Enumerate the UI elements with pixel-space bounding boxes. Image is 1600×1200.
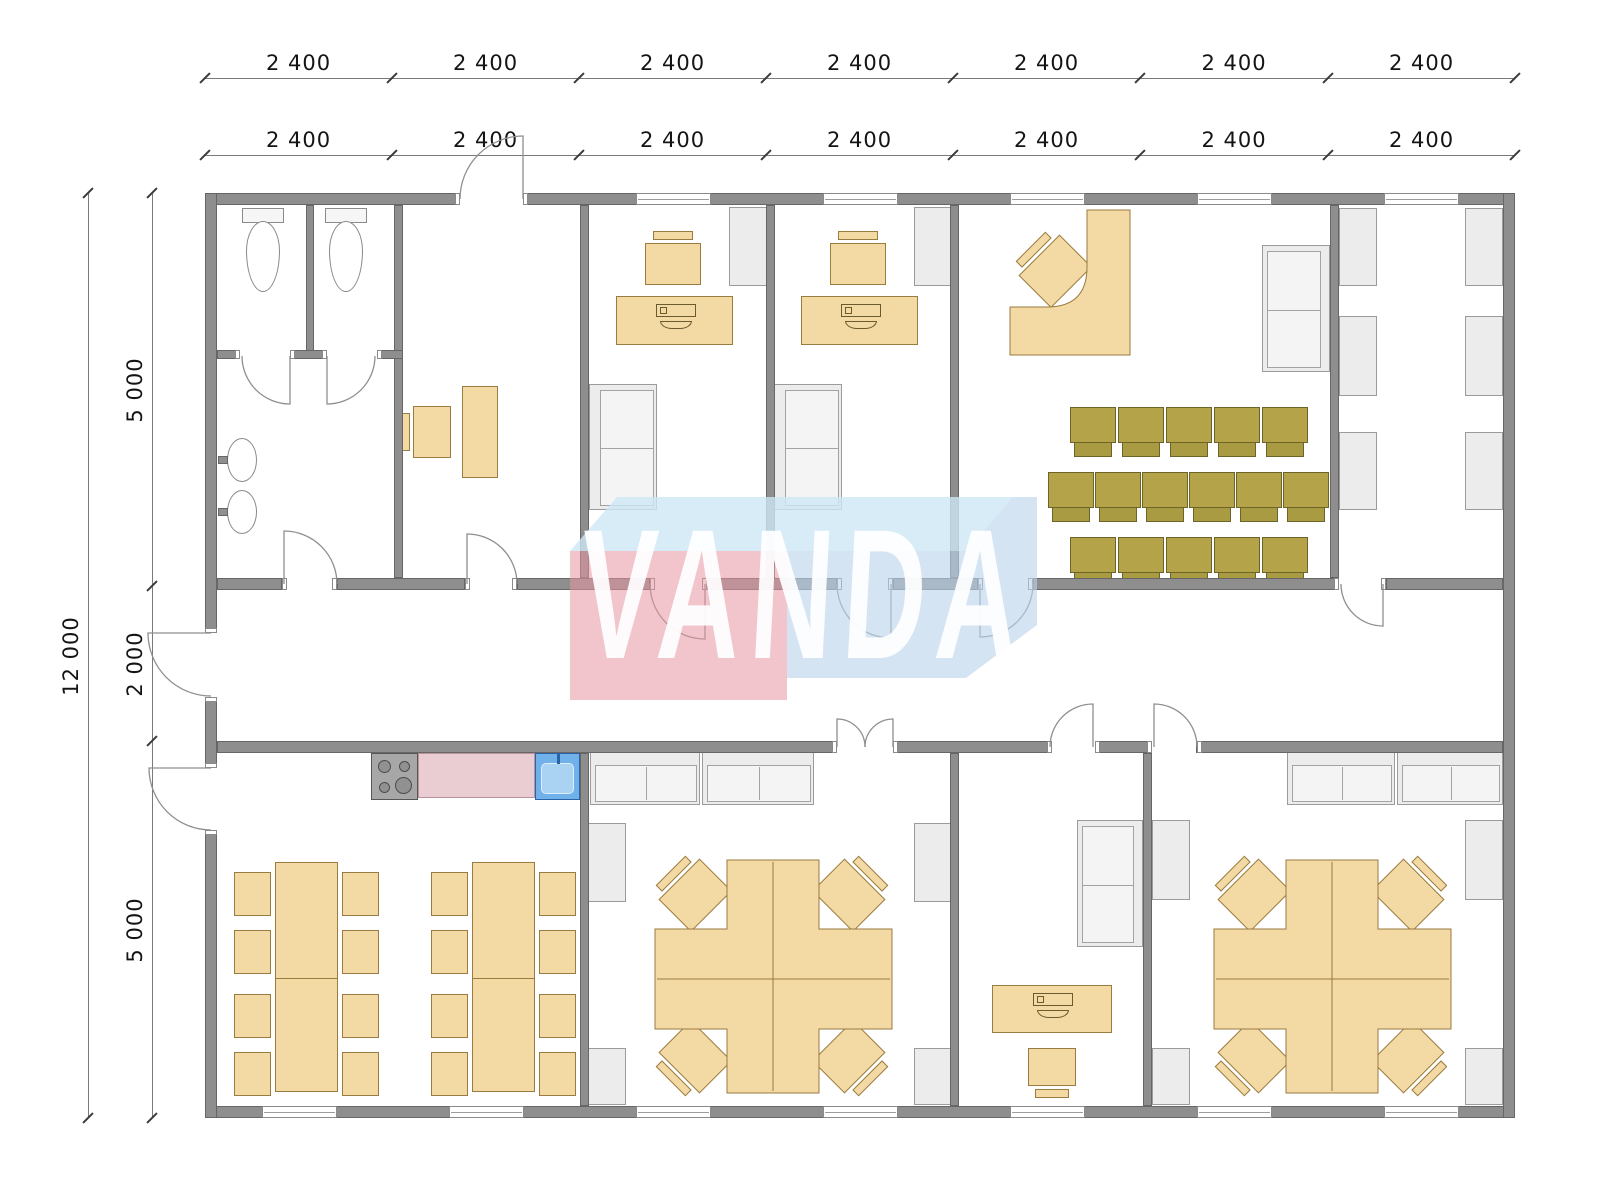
door-swing — [327, 356, 375, 404]
door-swing — [1050, 704, 1093, 747]
door-swing — [1341, 584, 1383, 626]
floor-plan: VANDA 2 4002 4002 4002 4002 4002 4002 40… — [0, 0, 1600, 1200]
door-swing — [242, 356, 290, 404]
door-swing — [460, 136, 523, 199]
door-swing — [148, 633, 211, 696]
door-swing — [467, 534, 517, 584]
door-swing — [1154, 704, 1197, 747]
door-swing — [865, 719, 893, 747]
desk-surface — [1010, 210, 1130, 355]
watermark-logo: VANDA — [575, 503, 1034, 688]
door-swing — [837, 719, 865, 747]
door-swing — [284, 531, 337, 584]
door-swing — [149, 768, 211, 830]
